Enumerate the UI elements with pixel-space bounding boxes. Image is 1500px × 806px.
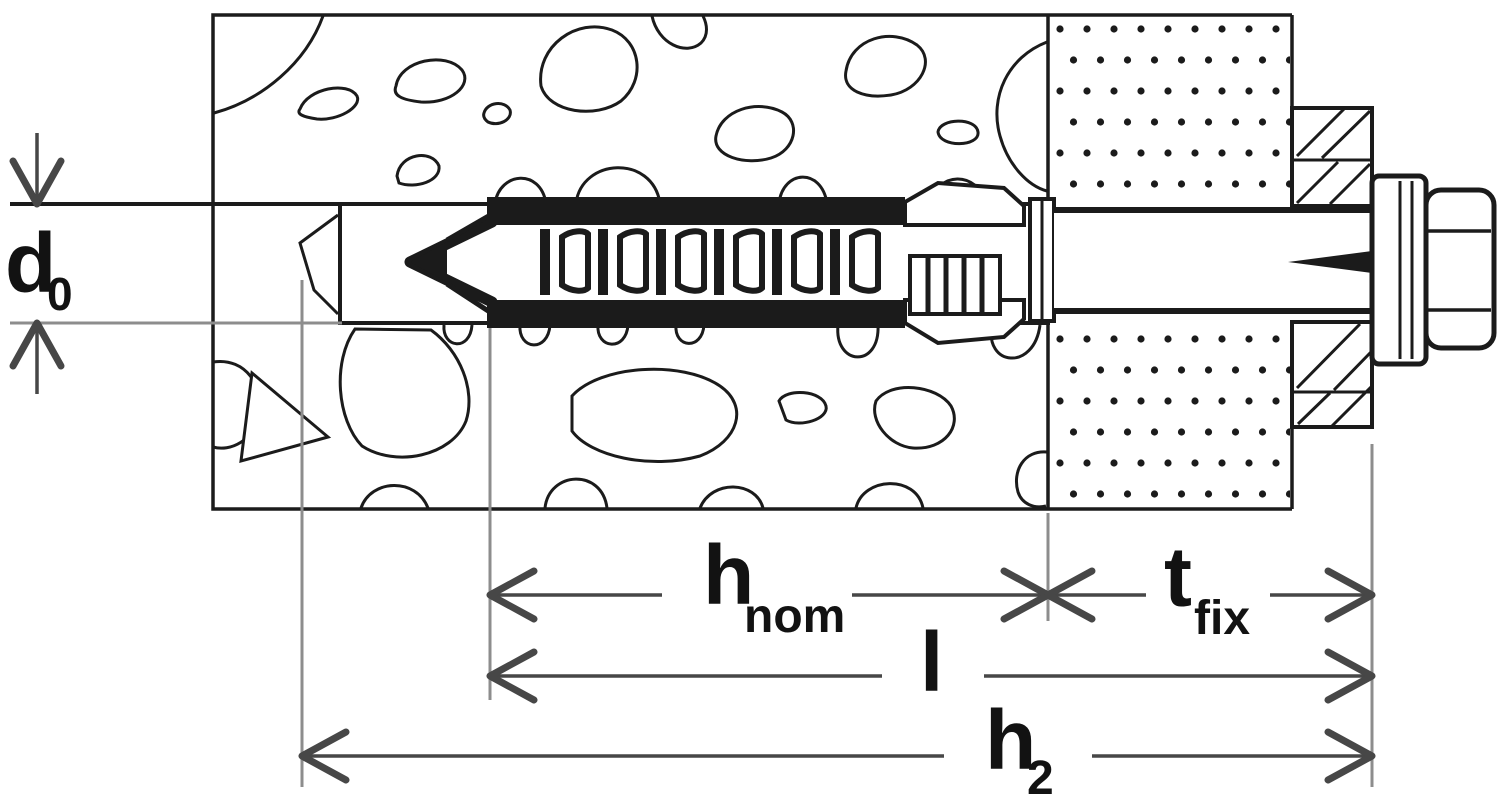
aggregate-stone — [700, 487, 763, 508]
aggregate-stone — [397, 156, 439, 185]
aggregate-stone — [395, 60, 465, 102]
aggregate-stone — [846, 36, 926, 96]
aggregate-stone — [545, 479, 607, 508]
aggregate-stone — [299, 88, 358, 119]
aggregate-stone — [716, 107, 794, 161]
aggregate-stone — [1016, 452, 1047, 507]
aggregate-stone — [652, 16, 707, 48]
aggregate-stone — [340, 329, 469, 457]
anchor-assembly — [410, 108, 1494, 427]
sleeve-bottom-band — [487, 300, 905, 328]
aggregate-stone — [361, 485, 428, 508]
aggregate-stone — [572, 369, 737, 461]
technical-drawing-canvas: d0 hnom tfix l h2 — [0, 0, 1500, 806]
label-tfix: tfix — [1164, 530, 1250, 645]
aggregate-stone — [444, 325, 472, 344]
aggregate-stone — [300, 215, 338, 314]
screw-shaft — [1054, 210, 1372, 311]
sleeve-top-band — [487, 197, 905, 225]
aggregate-stone — [541, 27, 638, 111]
label-h2: h2 — [985, 693, 1054, 805]
sleeve-expansion-top — [905, 183, 1024, 225]
aggregate-stone — [856, 484, 923, 508]
label-hnom: hnom — [703, 528, 845, 643]
label-d0: d0 — [5, 216, 73, 320]
anti-rotation-fins — [910, 256, 1000, 314]
aggregate-stone — [838, 325, 878, 357]
aggregate-stone — [997, 42, 1047, 191]
aggregate-stone — [484, 104, 511, 124]
aggregate-stone — [241, 373, 328, 461]
aggregate-stone — [779, 392, 826, 423]
plaster-dotted-area-bottom — [1052, 314, 1290, 506]
hex-bolt-head — [1426, 190, 1494, 348]
label-l: l — [920, 615, 943, 709]
plug-collar — [1030, 199, 1054, 321]
plaster-dotted-area-top — [1052, 17, 1290, 207]
aggregate-stone — [938, 121, 978, 144]
aggregate-stone — [875, 388, 955, 449]
washer — [1372, 176, 1426, 364]
anchor-cross-section-diagram: d0 hnom tfix l h2 — [0, 0, 1500, 806]
